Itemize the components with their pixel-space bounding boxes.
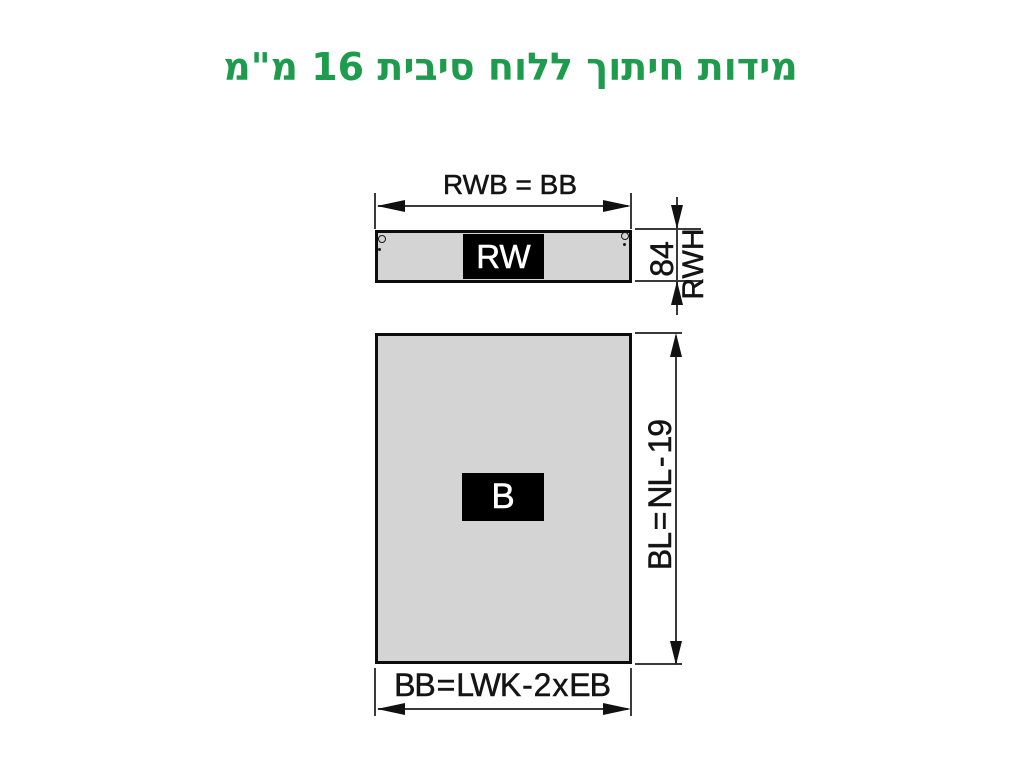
- body-width-dimension-line: [378, 708, 628, 710]
- rail-panel-label: RW: [463, 234, 544, 279]
- rail-width-dimension-line: [378, 205, 628, 207]
- rail-height-dimension-label: RWH: [677, 224, 711, 304]
- rail-height-value: 84: [645, 231, 679, 287]
- arrow-right-icon: [603, 703, 631, 715]
- page-title: מידות חיתוך ללוח סיבית 16 מ"מ: [0, 44, 1021, 90]
- rail-width-dimension-label: RWB = BB: [360, 171, 660, 199]
- pilot-dot-left-icon: [378, 248, 381, 251]
- body-panel-label: B: [462, 473, 544, 521]
- drill-hole-right-icon: [621, 232, 629, 240]
- drill-hole-left-icon: [378, 235, 386, 243]
- arrow-up-icon: [670, 333, 682, 357]
- pilot-dot-right-icon: [623, 243, 626, 246]
- diagram-canvas: מידות חיתוך ללוח סיבית 16 מ"מ RWB = BB R…: [0, 0, 1021, 776]
- arrow-right-icon: [603, 200, 631, 212]
- rail-width-extension-line-left: [374, 193, 376, 229]
- arrow-left-icon: [377, 703, 405, 715]
- body-width-dimension-label: BB = LWK - 2 x EB: [352, 670, 652, 701]
- arrow-down-icon: [670, 641, 682, 665]
- arrow-left-icon: [377, 200, 405, 212]
- body-height-dimension-label: BL = NL - 19: [643, 385, 677, 605]
